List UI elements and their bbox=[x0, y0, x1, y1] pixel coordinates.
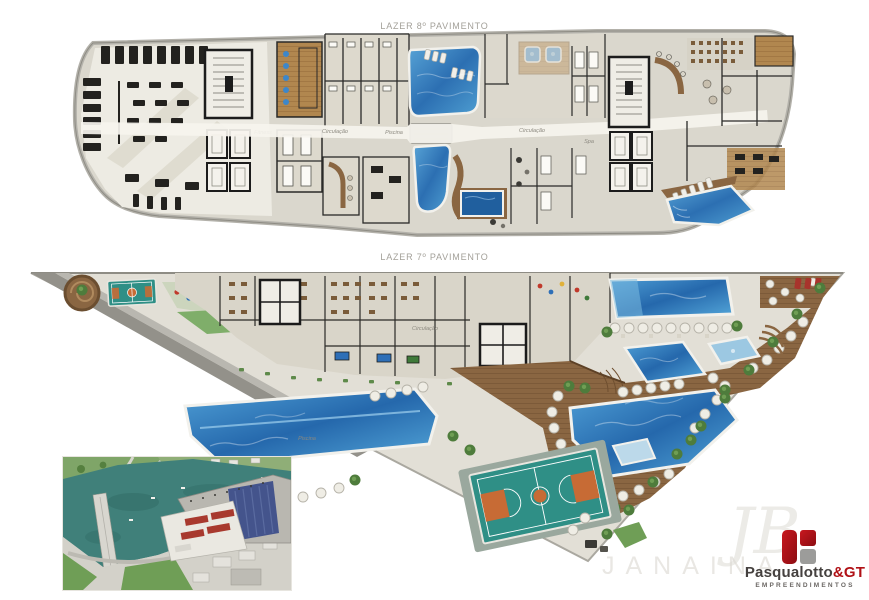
brand-name: Pasqualotto&GT bbox=[725, 564, 869, 581]
floor8-plan: Fitness bbox=[67, 26, 802, 238]
brand-name-main: Pasqualotto bbox=[745, 564, 833, 581]
floor7-title: LAZER 7º PAVIMENTO bbox=[0, 252, 869, 262]
brand-name-accent: &GT bbox=[833, 564, 865, 581]
floor7-piscina-label: Piscina bbox=[298, 436, 316, 442]
big-pool bbox=[610, 278, 733, 318]
spa-label: Spa bbox=[584, 139, 594, 145]
elevator-core-c2 bbox=[480, 324, 526, 366]
brand-subtitle: EMPREENDIMENTOS bbox=[725, 582, 869, 589]
poster-canvas: LAZER 8º PAVIMENTO LAZER 7º PAVIMENTO bbox=[0, 0, 869, 600]
piscina-label: Piscina bbox=[385, 130, 403, 136]
elevator-core-b bbox=[609, 57, 652, 191]
brand-logo-icon bbox=[781, 529, 817, 565]
sauna-rooms bbox=[485, 34, 605, 118]
site-aerial-view bbox=[62, 456, 292, 591]
circulacao-left-label: Circulação bbox=[322, 129, 348, 135]
floor7-circulacao-label: Circulação bbox=[412, 326, 438, 332]
circulacao-right-label: Circulação bbox=[519, 128, 545, 134]
elevator-core-c1 bbox=[260, 280, 300, 324]
round-planter bbox=[65, 276, 99, 310]
mini-court bbox=[107, 279, 156, 306]
locker-massage-rooms bbox=[277, 42, 322, 192]
